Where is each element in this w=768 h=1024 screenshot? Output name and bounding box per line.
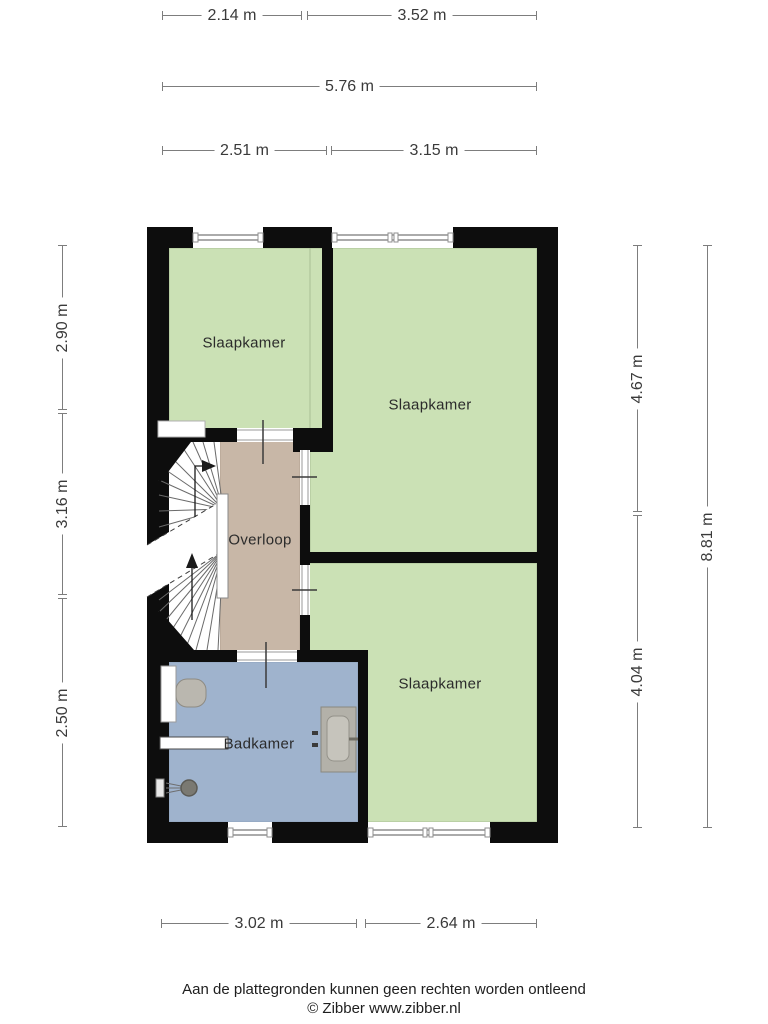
- window-slaapkamer-tl: [193, 227, 263, 248]
- room-label-overloop: Overloop: [228, 532, 291, 549]
- room-label-badkamer: Badkamer: [224, 736, 295, 753]
- window-slaapkamer-tr: [332, 227, 453, 248]
- radiator-symbol: [160, 737, 228, 749]
- dimension-right-bottom: 4.04 m: [637, 515, 638, 828]
- room-label-slaapkamer-tr: Slaapkamer: [388, 397, 471, 414]
- dimension-right-total: 8.81 m: [707, 245, 708, 828]
- footer-disclaimer: Aan de plattegronden kunnen geen rechten…: [0, 981, 768, 998]
- floorplan-canvas: [0, 0, 768, 1024]
- floorplan-page: Slaapkamer Slaapkamer Overloop Slaapkame…: [0, 0, 768, 1024]
- dimension-bottom-right: 2.64 m: [365, 923, 537, 924]
- dimension-top-row1-left: 2.14 m: [162, 15, 302, 16]
- stair-top-recess: [158, 421, 205, 437]
- dimension-top-row3-left: 2.51 m: [162, 150, 327, 151]
- room-label-slaapkamer-br: Slaapkamer: [398, 676, 481, 693]
- dimension-bottom-left: 3.02 m: [161, 923, 357, 924]
- dimension-top-row3-right: 3.15 m: [331, 150, 537, 151]
- dimension-right-top: 4.67 m: [637, 245, 638, 512]
- window-slaapkamer-br: [368, 822, 490, 843]
- dimension-left-middle: 3.16 m: [62, 413, 63, 595]
- dimension-top-row2-total: 5.76 m: [162, 86, 537, 87]
- window-badkamer: [228, 822, 272, 843]
- dimension-left-top: 2.90 m: [62, 245, 63, 410]
- room-overloop: [220, 440, 300, 662]
- room-label-slaapkamer-tl: Slaapkamer: [202, 335, 285, 352]
- footer-credit: © Zibber www.zibber.nl: [0, 1000, 768, 1017]
- dimension-top-row1-right: 3.52 m: [307, 15, 537, 16]
- stair-handrail: [217, 494, 228, 598]
- dimension-left-bottom: 2.50 m: [62, 598, 63, 827]
